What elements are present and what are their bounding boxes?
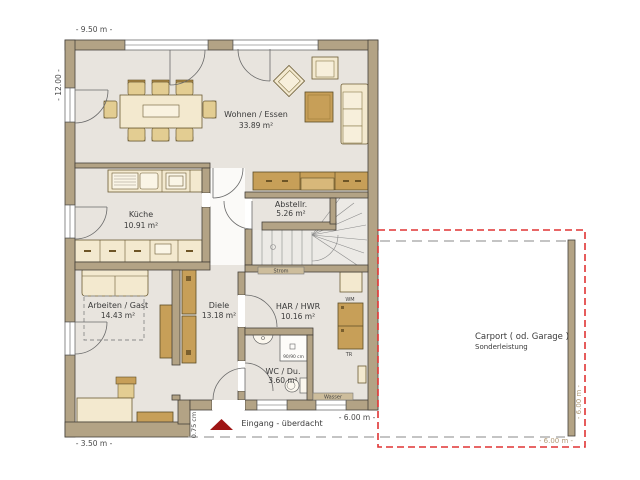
dim-carport-width: - 6.00 m - [539, 437, 574, 445]
room-label-kueche: Küche [129, 210, 153, 219]
room-label-abstellraum: Abstellr. [275, 200, 307, 209]
heater-box [358, 366, 366, 383]
dim-left: - 12.00 - [54, 69, 63, 101]
room-area-wc: 3.60 m² [268, 376, 297, 385]
dryer-label: TR [345, 352, 353, 358]
dim-entrance-width: - 6.00 m - [339, 413, 376, 422]
room-area-diele: 13.18 m² [202, 311, 236, 320]
wasser-label: Wasser [324, 395, 343, 401]
room-area-wohnen: 33.89 m² [239, 121, 273, 130]
armchair [312, 57, 338, 79]
strom-label: Strom [273, 269, 288, 275]
room-area-arbeiten: 14.43 m² [101, 311, 135, 320]
room-area-kueche: 10.91 m² [124, 221, 158, 230]
front-door-opening [212, 400, 245, 410]
dim-carport-depth: - 6.00 m - [575, 384, 583, 419]
room-label-wohnen: Wohnen / Essen [224, 110, 288, 119]
floor-plan-page: Strom Wasser WM TR 90/90 cm Wohnen / Ess… [0, 0, 640, 480]
kitchen-sink [140, 173, 158, 189]
sofa [341, 84, 368, 144]
entrance-label: Eingang - überdacht [241, 419, 322, 428]
stair-stringer-wall [262, 222, 336, 230]
room-label-wc: WC / Du. [265, 367, 300, 376]
room-label-har-hwr: HAR / HWR [276, 302, 321, 311]
kitchen-counter-top [108, 170, 202, 192]
carport-wall [568, 240, 575, 436]
floor-plan-drawing: Strom Wasser WM TR 90/90 cm Wohnen / Ess… [0, 0, 640, 480]
kitchen-opening [202, 193, 210, 207]
room-label-arbeiten: Arbeiten / Gast [88, 301, 148, 310]
carport-subtitle: Sonderleistung [475, 343, 528, 351]
kitchen-counter-bottom [75, 240, 202, 262]
dim-entrance-depth: 0.75 cm [190, 412, 198, 438]
room-area-abstellraum: 5.26 m² [276, 209, 305, 218]
room-label-diele: Diele [209, 301, 230, 310]
shower-size-label: 90/90 cm [283, 354, 304, 360]
dim-top: - 9.50 m - [76, 25, 113, 34]
room-area-har-hwr: 10.16 m² [281, 312, 315, 321]
washer-label: WM [345, 297, 354, 303]
guest-sofa [82, 268, 148, 296]
coffee-table [305, 92, 333, 122]
carport-title: Carport ( od. Garage ) [475, 332, 569, 342]
dim-bottom-left: - 3.50 m - [76, 439, 113, 448]
sideboard [253, 172, 368, 190]
